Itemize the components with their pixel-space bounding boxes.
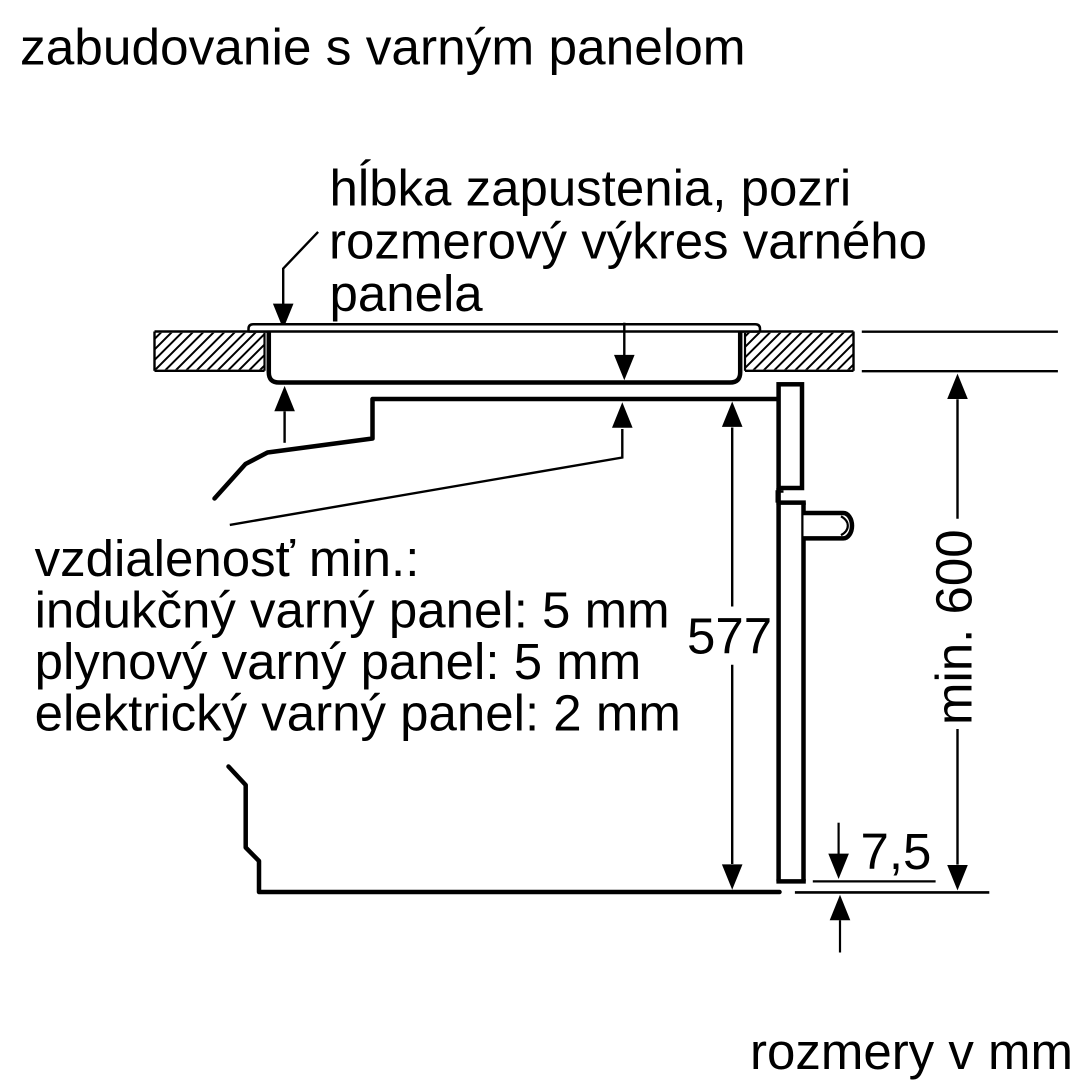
svg-text:hĺbka zapustenia, pozri: hĺbka zapustenia, pozri [330, 159, 852, 217]
svg-text:min. 600: min. 600 [926, 529, 983, 725]
svg-text:elektrický varný panel: 2 mm: elektrický varný panel: 2 mm [35, 684, 681, 741]
svg-text:577: 577 [687, 607, 772, 664]
svg-text:rozmery v mm: rozmery v mm [750, 1023, 1073, 1080]
svg-text:zabudovanie s varným panelom: zabudovanie s varným panelom [20, 18, 746, 76]
svg-text:panela: panela [330, 265, 484, 322]
svg-text:rozmerový výkres varného: rozmerový výkres varného [329, 212, 927, 269]
svg-text:plynový varný panel: 5 mm: plynový varný panel: 5 mm [35, 633, 642, 690]
svg-text:7,5: 7,5 [861, 823, 932, 880]
svg-text:indukčný varný panel: 5 mm: indukčný varný panel: 5 mm [35, 581, 670, 638]
svg-text:vzdialenosť min.:: vzdialenosť min.: [35, 530, 420, 587]
